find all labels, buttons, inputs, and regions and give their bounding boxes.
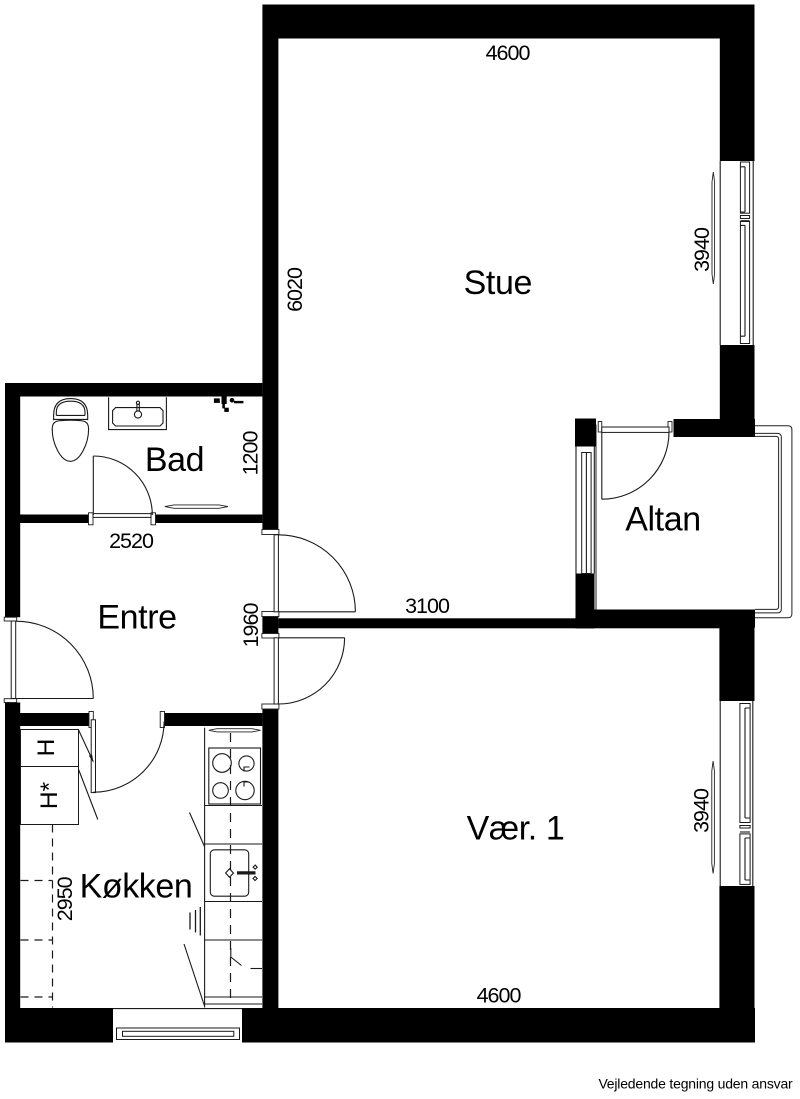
svg-text:Køkken: Køkken <box>80 868 193 906</box>
svg-text:H: H <box>33 739 60 757</box>
svg-text:1200: 1200 <box>239 431 263 476</box>
svg-text:3100: 3100 <box>405 594 450 618</box>
svg-text:Bad: Bad <box>145 441 204 479</box>
svg-text:Vær. 1: Vær. 1 <box>467 810 565 848</box>
svg-text:2950: 2950 <box>53 876 77 921</box>
svg-text:Stue: Stue <box>464 264 532 302</box>
svg-text:Vejledende tegning uden ansvar: Vejledende tegning uden ansvar <box>598 1076 793 1092</box>
svg-text:2520: 2520 <box>109 529 154 553</box>
svg-text:Entre: Entre <box>97 599 176 637</box>
svg-text:1960: 1960 <box>239 603 263 648</box>
svg-text:3940: 3940 <box>690 227 714 272</box>
svg-text:H*: H* <box>36 781 63 809</box>
svg-text:6020: 6020 <box>283 267 307 312</box>
svg-text:Altan: Altan <box>625 501 701 539</box>
svg-text:4600: 4600 <box>477 983 522 1007</box>
svg-text:4600: 4600 <box>486 41 531 65</box>
svg-text:3940: 3940 <box>690 788 714 833</box>
